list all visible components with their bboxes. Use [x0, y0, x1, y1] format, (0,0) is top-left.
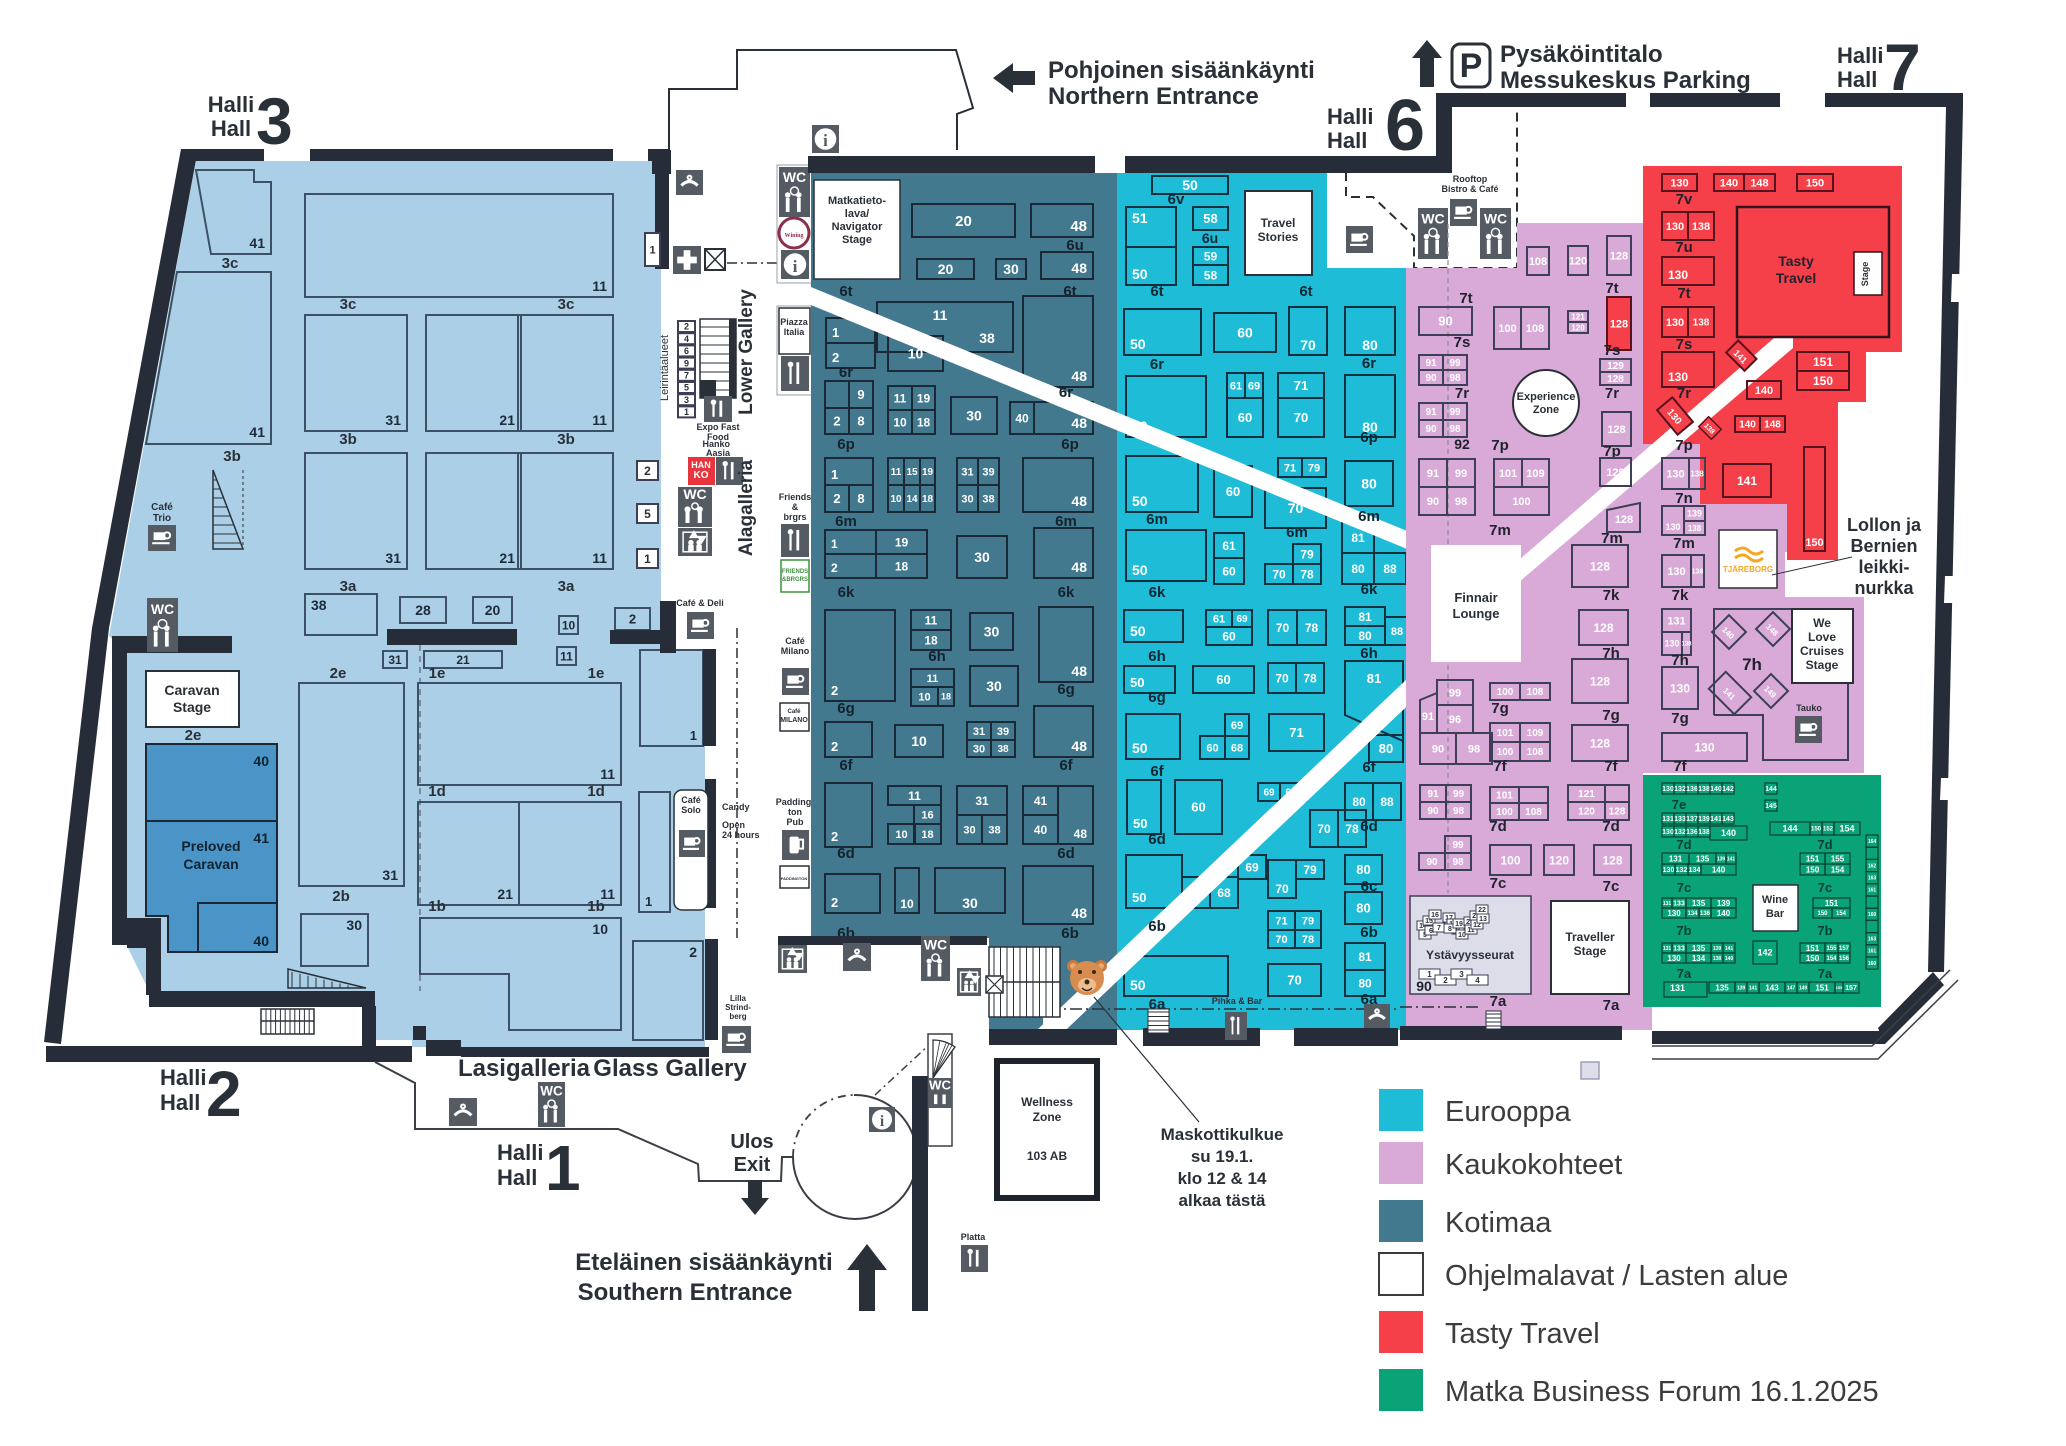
- svg-text:Bar: Bar: [1766, 908, 1785, 920]
- svg-text:130: 130: [1668, 268, 1688, 282]
- svg-text:2: 2: [644, 464, 651, 478]
- svg-text:6f: 6f: [1362, 759, 1376, 776]
- svg-text:30: 30: [974, 549, 990, 565]
- svg-text:136: 136: [1686, 829, 1698, 836]
- svg-text:143: 143: [1765, 983, 1779, 992]
- svg-text:148: 148: [1750, 177, 1768, 189]
- svg-text:7k: 7k: [1672, 587, 1689, 604]
- svg-text:140: 140: [1717, 909, 1731, 918]
- svg-text:Expo Fast: Expo Fast: [696, 422, 739, 432]
- svg-text:140: 140: [1712, 865, 1726, 874]
- svg-text:6k: 6k: [1149, 584, 1166, 601]
- svg-text:ton: ton: [788, 807, 802, 817]
- svg-text:92: 92: [1454, 436, 1470, 452]
- svg-text:163: 163: [1868, 937, 1877, 943]
- svg-text:Kaukokohteet: Kaukokohteet: [1445, 1149, 1622, 1181]
- svg-text:20: 20: [485, 602, 501, 618]
- svg-text:1: 1: [831, 537, 838, 551]
- svg-text:144: 144: [1782, 824, 1797, 834]
- svg-text:141: 141: [1727, 856, 1736, 862]
- svg-text:7a: 7a: [1677, 966, 1692, 981]
- svg-text:137: 137: [1686, 816, 1698, 823]
- svg-text:2: 2: [831, 829, 838, 844]
- svg-text:70: 70: [1275, 882, 1289, 896]
- svg-text:38: 38: [997, 744, 1009, 755]
- svg-text:71: 71: [1275, 915, 1287, 927]
- svg-text:Stories: Stories: [1258, 230, 1299, 244]
- svg-text:1: 1: [545, 1132, 581, 1204]
- svg-text:128: 128: [1615, 514, 1633, 526]
- svg-text:7d: 7d: [1817, 837, 1832, 852]
- svg-text:su 19.1.: su 19.1.: [1191, 1147, 1253, 1166]
- svg-text:121: 121: [1571, 312, 1585, 321]
- svg-text:40: 40: [1034, 823, 1048, 837]
- svg-text:7c: 7c: [1603, 878, 1620, 895]
- svg-text:151: 151: [1825, 899, 1839, 908]
- svg-text:39: 39: [982, 466, 994, 478]
- svg-text:130: 130: [1664, 639, 1679, 649]
- svg-text:70: 70: [1294, 410, 1308, 425]
- svg-text:133: 133: [1673, 946, 1685, 953]
- svg-text:7c: 7c: [1677, 880, 1691, 895]
- svg-text:50: 50: [1130, 675, 1144, 690]
- svg-text:140: 140: [1725, 956, 1734, 962]
- svg-text:135: 135: [1692, 944, 1706, 953]
- svg-text:80: 80: [1358, 976, 1372, 990]
- svg-text:138: 138: [1713, 956, 1722, 962]
- svg-text:Preloved: Preloved: [181, 838, 240, 854]
- svg-text:6r: 6r: [1059, 384, 1073, 401]
- svg-text:139: 139: [1717, 856, 1726, 862]
- svg-text:50: 50: [1130, 977, 1146, 993]
- svg-text:30: 30: [961, 493, 973, 505]
- svg-text:6u: 6u: [1202, 230, 1218, 246]
- svg-text:WC: WC: [1421, 210, 1444, 226]
- svg-text:Hall: Hall: [160, 1090, 200, 1115]
- svg-text:139: 139: [1717, 899, 1731, 908]
- svg-text:138: 138: [1693, 318, 1710, 329]
- svg-text:135: 135: [1696, 854, 1710, 863]
- svg-text:2: 2: [833, 491, 840, 506]
- svg-text:98: 98: [1449, 424, 1461, 435]
- svg-text:155: 155: [1836, 985, 1843, 990]
- svg-text:38: 38: [988, 824, 1000, 836]
- svg-text:3a: 3a: [340, 578, 357, 595]
- svg-text:PADDINGTON: PADDINGTON: [781, 876, 808, 881]
- svg-text:Lower Gallery: Lower Gallery: [736, 289, 757, 415]
- svg-text:TJÄREBORG: TJÄREBORG: [1723, 565, 1773, 574]
- svg-text:4: 4: [684, 334, 689, 344]
- svg-text:9: 9: [684, 358, 689, 368]
- svg-text:19: 19: [1455, 921, 1463, 928]
- svg-text:WC: WC: [924, 937, 947, 953]
- svg-text:11: 11: [592, 550, 607, 566]
- svg-text:7r: 7r: [1605, 385, 1619, 402]
- svg-text:140: 140: [1720, 177, 1738, 189]
- svg-text:141: 141: [1710, 816, 1722, 823]
- svg-text:60: 60: [1216, 672, 1230, 687]
- svg-text:58: 58: [1203, 211, 1217, 226]
- svg-text:6k: 6k: [1361, 581, 1378, 598]
- svg-text:7m: 7m: [1489, 522, 1511, 539]
- svg-text:7u: 7u: [1675, 239, 1693, 256]
- svg-text:6k: 6k: [1058, 584, 1075, 601]
- svg-text:128: 128: [1590, 559, 1610, 573]
- svg-text:6f: 6f: [1059, 757, 1073, 774]
- svg-text:Café & Deli: Café & Deli: [676, 598, 724, 608]
- svg-text:1e: 1e: [588, 665, 605, 682]
- svg-text:Pihka & Bar: Pihka & Bar: [1212, 996, 1263, 1006]
- svg-text:18: 18: [895, 559, 909, 573]
- svg-text:7: 7: [1884, 30, 1921, 104]
- svg-text:6r: 6r: [839, 364, 853, 381]
- svg-text:70: 70: [1275, 934, 1287, 946]
- svg-text:6h: 6h: [928, 648, 946, 665]
- svg-text:88: 88: [1391, 626, 1403, 638]
- svg-text:100: 100: [1496, 807, 1513, 818]
- svg-text:91: 91: [1425, 407, 1437, 418]
- svg-text:Rooftop: Rooftop: [1453, 174, 1488, 184]
- svg-text:131: 131: [1662, 816, 1674, 823]
- svg-text:70: 70: [1275, 671, 1289, 685]
- svg-text:Glass Gallery: Glass Gallery: [593, 1055, 747, 1082]
- svg-text:138: 138: [1698, 829, 1710, 836]
- svg-text:160: 160: [1868, 912, 1877, 918]
- svg-text:150: 150: [1805, 537, 1823, 549]
- svg-text:78: 78: [1305, 621, 1319, 635]
- svg-text:149: 149: [1799, 985, 1808, 991]
- svg-text:70: 70: [1287, 973, 1301, 988]
- svg-text:Stage: Stage: [1860, 262, 1870, 287]
- svg-text:1: 1: [832, 325, 839, 340]
- svg-text:Finnair: Finnair: [1454, 590, 1497, 605]
- svg-text:109: 109: [1526, 468, 1544, 480]
- svg-text:70: 70: [1272, 567, 1286, 581]
- svg-text:13: 13: [1479, 916, 1487, 923]
- svg-text:6h: 6h: [1360, 645, 1378, 662]
- svg-text:7m: 7m: [1673, 535, 1695, 552]
- svg-text:Ulos: Ulos: [730, 1131, 773, 1153]
- svg-text:90: 90: [1427, 806, 1439, 817]
- svg-text:Matkatieto-: Matkatieto-: [828, 195, 886, 207]
- svg-text:132: 132: [1676, 867, 1688, 874]
- svg-text:30: 30: [984, 624, 1000, 640]
- svg-text:Café: Café: [785, 636, 805, 646]
- svg-text:5: 5: [644, 507, 651, 521]
- svg-text:157: 157: [1839, 946, 1850, 952]
- svg-text:i: i: [823, 131, 828, 150]
- svg-text:Zone: Zone: [1533, 404, 1559, 416]
- svg-text:7v: 7v: [1676, 191, 1693, 208]
- svg-text:69: 69: [1231, 720, 1243, 732]
- svg-text:10: 10: [893, 415, 907, 429]
- svg-text:99: 99: [1449, 407, 1461, 418]
- svg-text:79: 79: [1303, 863, 1317, 877]
- svg-text:30: 30: [1003, 261, 1019, 277]
- svg-text:Hall: Hall: [211, 116, 251, 141]
- svg-text:133: 133: [1674, 816, 1686, 823]
- svg-text:30: 30: [963, 824, 975, 836]
- svg-text:80: 80: [1362, 337, 1378, 353]
- svg-text:90: 90: [1426, 857, 1438, 868]
- svg-text:6g: 6g: [837, 700, 855, 717]
- svg-text:Tasty Travel: Tasty Travel: [1445, 1318, 1600, 1350]
- svg-text:139: 139: [1698, 816, 1710, 823]
- svg-text:79: 79: [1300, 547, 1314, 561]
- svg-text:Friends: Friends: [779, 492, 812, 502]
- svg-text:128: 128: [1607, 374, 1624, 385]
- svg-text:80: 80: [1351, 562, 1365, 576]
- svg-text:Pysäköintitalo: Pysäköintitalo: [1500, 41, 1663, 68]
- svg-text:91: 91: [1427, 468, 1439, 480]
- svg-text:31: 31: [385, 550, 401, 566]
- svg-text:151: 151: [1813, 355, 1833, 369]
- svg-text:40: 40: [253, 933, 269, 949]
- svg-text:18: 18: [921, 829, 933, 841]
- svg-text:Ystävyysseurat: Ystävyysseurat: [1426, 948, 1514, 962]
- svg-text:48: 48: [1071, 738, 1087, 754]
- svg-text:131: 131: [1663, 946, 1672, 952]
- svg-text:130: 130: [1667, 954, 1681, 963]
- svg-text:2b: 2b: [332, 888, 350, 905]
- svg-text:1b: 1b: [428, 898, 446, 915]
- svg-text:156: 156: [1839, 956, 1850, 962]
- svg-text:Caravan: Caravan: [164, 682, 219, 698]
- svg-text:150: 150: [1806, 865, 1820, 874]
- svg-text:7: 7: [684, 371, 689, 381]
- svg-text:59: 59: [1204, 249, 1218, 263]
- svg-text:9: 9: [857, 387, 864, 402]
- svg-text:58: 58: [1204, 268, 1218, 282]
- svg-text:61: 61: [1222, 539, 1236, 553]
- svg-text:154: 154: [1831, 865, 1845, 874]
- svg-text:Exit: Exit: [734, 1154, 771, 1176]
- svg-text:Platta: Platta: [961, 1232, 987, 1242]
- svg-text:69: 69: [1263, 788, 1275, 799]
- svg-text:6g: 6g: [1057, 681, 1075, 698]
- svg-text:3b: 3b: [223, 448, 241, 465]
- svg-text:164: 164: [1868, 839, 1877, 845]
- svg-text:130: 130: [1666, 317, 1684, 329]
- svg-text:90: 90: [1416, 978, 1432, 994]
- svg-text:3: 3: [684, 395, 689, 405]
- svg-text:48: 48: [1074, 827, 1088, 841]
- svg-text:Stage: Stage: [1574, 944, 1607, 958]
- svg-text:14: 14: [906, 494, 918, 505]
- svg-text:24 hours: 24 hours: [722, 830, 760, 840]
- svg-text:150: 150: [1806, 954, 1820, 963]
- svg-text:130: 130: [1670, 681, 1690, 695]
- svg-text:Solo: Solo: [681, 805, 701, 815]
- svg-text:48: 48: [1071, 368, 1087, 384]
- svg-text:131: 131: [1667, 615, 1685, 627]
- svg-text:50: 50: [1132, 562, 1148, 578]
- svg-text:99: 99: [1453, 789, 1465, 800]
- svg-text:132: 132: [1674, 829, 1686, 836]
- svg-text:140: 140: [1721, 828, 1736, 838]
- svg-text:81: 81: [1358, 950, 1372, 964]
- svg-text:31: 31: [388, 653, 402, 667]
- svg-text:Hall: Hall: [497, 1165, 537, 1190]
- svg-text:91: 91: [1427, 789, 1439, 800]
- svg-text:We: We: [1813, 616, 1831, 630]
- svg-text:Lollon ja: Lollon ja: [1847, 515, 1922, 535]
- svg-text:20: 20: [938, 261, 954, 277]
- svg-text:140: 140: [1755, 385, 1773, 397]
- svg-text:78: 78: [1300, 567, 1314, 581]
- svg-text:50: 50: [1132, 740, 1148, 756]
- svg-text:81: 81: [1351, 531, 1365, 545]
- svg-text:161: 161: [1868, 949, 1877, 955]
- svg-text:130: 130: [1663, 867, 1675, 874]
- svg-text:Aasia: Aasia: [706, 448, 731, 458]
- svg-text:2: 2: [831, 739, 838, 754]
- svg-text:130: 130: [1665, 522, 1680, 532]
- svg-text:11: 11: [560, 649, 573, 663]
- svg-text:Northern Entrance: Northern Entrance: [1048, 83, 1259, 110]
- svg-text:WC: WC: [929, 1077, 951, 1092]
- svg-text:128: 128: [1590, 674, 1610, 688]
- svg-text:6b: 6b: [1061, 925, 1079, 942]
- svg-text:FRIENDS: FRIENDS: [782, 569, 808, 575]
- svg-text:151: 151: [1815, 983, 1829, 992]
- svg-text:103 AB: 103 AB: [1027, 1149, 1068, 1163]
- svg-text:18: 18: [924, 633, 938, 647]
- svg-text:99: 99: [1452, 840, 1464, 851]
- svg-text:128: 128: [1609, 807, 1626, 818]
- svg-text:6: 6: [1429, 928, 1433, 935]
- svg-text:16: 16: [1431, 912, 1439, 919]
- svg-text:141: 141: [1725, 946, 1734, 952]
- svg-text:19: 19: [922, 467, 934, 478]
- svg-text:1: 1: [831, 467, 838, 482]
- svg-text:39: 39: [997, 726, 1009, 738]
- svg-text:138: 138: [1690, 469, 1704, 478]
- svg-text:1: 1: [684, 407, 689, 417]
- svg-text:61: 61: [1230, 380, 1242, 392]
- svg-text:21: 21: [497, 886, 513, 902]
- svg-text:2e: 2e: [185, 727, 202, 744]
- svg-text:6m: 6m: [1286, 524, 1308, 541]
- svg-text:134: 134: [1692, 954, 1706, 963]
- svg-text:50: 50: [1133, 816, 1147, 831]
- svg-text:Pub: Pub: [787, 817, 805, 827]
- svg-text:100: 100: [1498, 323, 1516, 335]
- svg-text:Piazza: Piazza: [780, 317, 809, 327]
- svg-text:10: 10: [911, 733, 927, 749]
- svg-text:91: 91: [1425, 358, 1437, 369]
- svg-text:Wining: Wining: [785, 233, 804, 239]
- svg-text:150: 150: [1813, 374, 1833, 388]
- svg-text:Halli: Halli: [1837, 43, 1883, 68]
- svg-text:128: 128: [1610, 250, 1628, 262]
- svg-text:31: 31: [385, 412, 401, 428]
- svg-text:Italia: Italia: [784, 327, 806, 337]
- svg-text:11: 11: [933, 307, 948, 323]
- svg-text:Cruises: Cruises: [1800, 644, 1844, 658]
- svg-text:6k: 6k: [838, 584, 855, 601]
- svg-text:41: 41: [249, 424, 265, 440]
- svg-text:2: 2: [832, 350, 839, 365]
- svg-text:7d: 7d: [1602, 818, 1620, 835]
- svg-text:i: i: [880, 1113, 885, 1130]
- svg-text:80: 80: [1356, 862, 1370, 877]
- svg-text:Kotimaa: Kotimaa: [1445, 1207, 1552, 1239]
- svg-text:Wine: Wine: [1762, 894, 1788, 906]
- svg-text:48: 48: [1071, 905, 1087, 921]
- svg-text:6: 6: [684, 346, 689, 356]
- svg-text:7g: 7g: [1491, 700, 1509, 717]
- svg-text:11: 11: [908, 789, 921, 803]
- svg-text:P: P: [1460, 47, 1483, 85]
- svg-text:161: 161: [1868, 888, 1877, 894]
- svg-text:40: 40: [1015, 411, 1029, 425]
- svg-text:7t: 7t: [1677, 285, 1690, 302]
- svg-text:leikki-: leikki-: [1858, 557, 1909, 577]
- svg-text:131: 131: [1669, 854, 1683, 863]
- svg-text:108: 108: [1526, 323, 1544, 335]
- svg-text:Café: Café: [681, 795, 701, 805]
- svg-text:1: 1: [644, 552, 651, 566]
- svg-text:130: 130: [1667, 566, 1685, 578]
- svg-text:6g: 6g: [1148, 689, 1166, 706]
- svg-text:19: 19: [917, 391, 931, 405]
- svg-text:6h: 6h: [1148, 648, 1166, 665]
- svg-text:2e: 2e: [330, 665, 347, 682]
- svg-text:Open: Open: [722, 820, 745, 830]
- svg-text:138: 138: [1692, 569, 1704, 576]
- svg-text:20: 20: [955, 213, 972, 230]
- svg-text:140: 140: [1710, 786, 1722, 793]
- svg-text:Eurooppa: Eurooppa: [1445, 1096, 1572, 1128]
- svg-text:101: 101: [1496, 791, 1513, 802]
- svg-text:98: 98: [1449, 373, 1461, 384]
- svg-text:3c: 3c: [222, 255, 239, 272]
- svg-text:60: 60: [1222, 564, 1236, 578]
- svg-text:7c: 7c: [1490, 875, 1507, 892]
- svg-text:&BRGRS: &BRGRS: [782, 577, 808, 583]
- svg-text:68: 68: [1217, 886, 1231, 900]
- svg-text:142: 142: [1722, 786, 1734, 793]
- svg-text:3c: 3c: [558, 296, 575, 313]
- svg-text:99: 99: [1449, 687, 1461, 699]
- svg-text:81: 81: [1367, 671, 1381, 686]
- svg-text:7g: 7g: [1602, 707, 1620, 724]
- svg-text:108: 108: [1527, 747, 1544, 758]
- svg-text:99: 99: [1455, 468, 1467, 480]
- svg-text:79: 79: [1308, 462, 1320, 474]
- svg-text:48: 48: [1071, 559, 1087, 575]
- svg-text:7t: 7t: [1459, 290, 1472, 307]
- svg-text:129: 129: [1607, 361, 1624, 372]
- svg-text:2: 2: [1443, 976, 1448, 985]
- svg-text:brgrs: brgrs: [783, 512, 806, 522]
- svg-text:48: 48: [1071, 493, 1087, 509]
- svg-text:139: 139: [1737, 985, 1746, 991]
- svg-text:80: 80: [1379, 741, 1393, 756]
- svg-text:6m: 6m: [1146, 511, 1168, 528]
- svg-text:40: 40: [253, 753, 269, 769]
- svg-text:6t: 6t: [1150, 283, 1163, 300]
- svg-text:7g: 7g: [1671, 710, 1689, 727]
- svg-text:138: 138: [1688, 524, 1702, 533]
- svg-text:6f: 6f: [1150, 763, 1164, 780]
- svg-text:138: 138: [1681, 642, 1692, 648]
- svg-text:7n: 7n: [1675, 490, 1693, 507]
- svg-text:154: 154: [1826, 956, 1837, 962]
- svg-text:7c: 7c: [1818, 880, 1832, 895]
- svg-text:WC: WC: [151, 601, 174, 617]
